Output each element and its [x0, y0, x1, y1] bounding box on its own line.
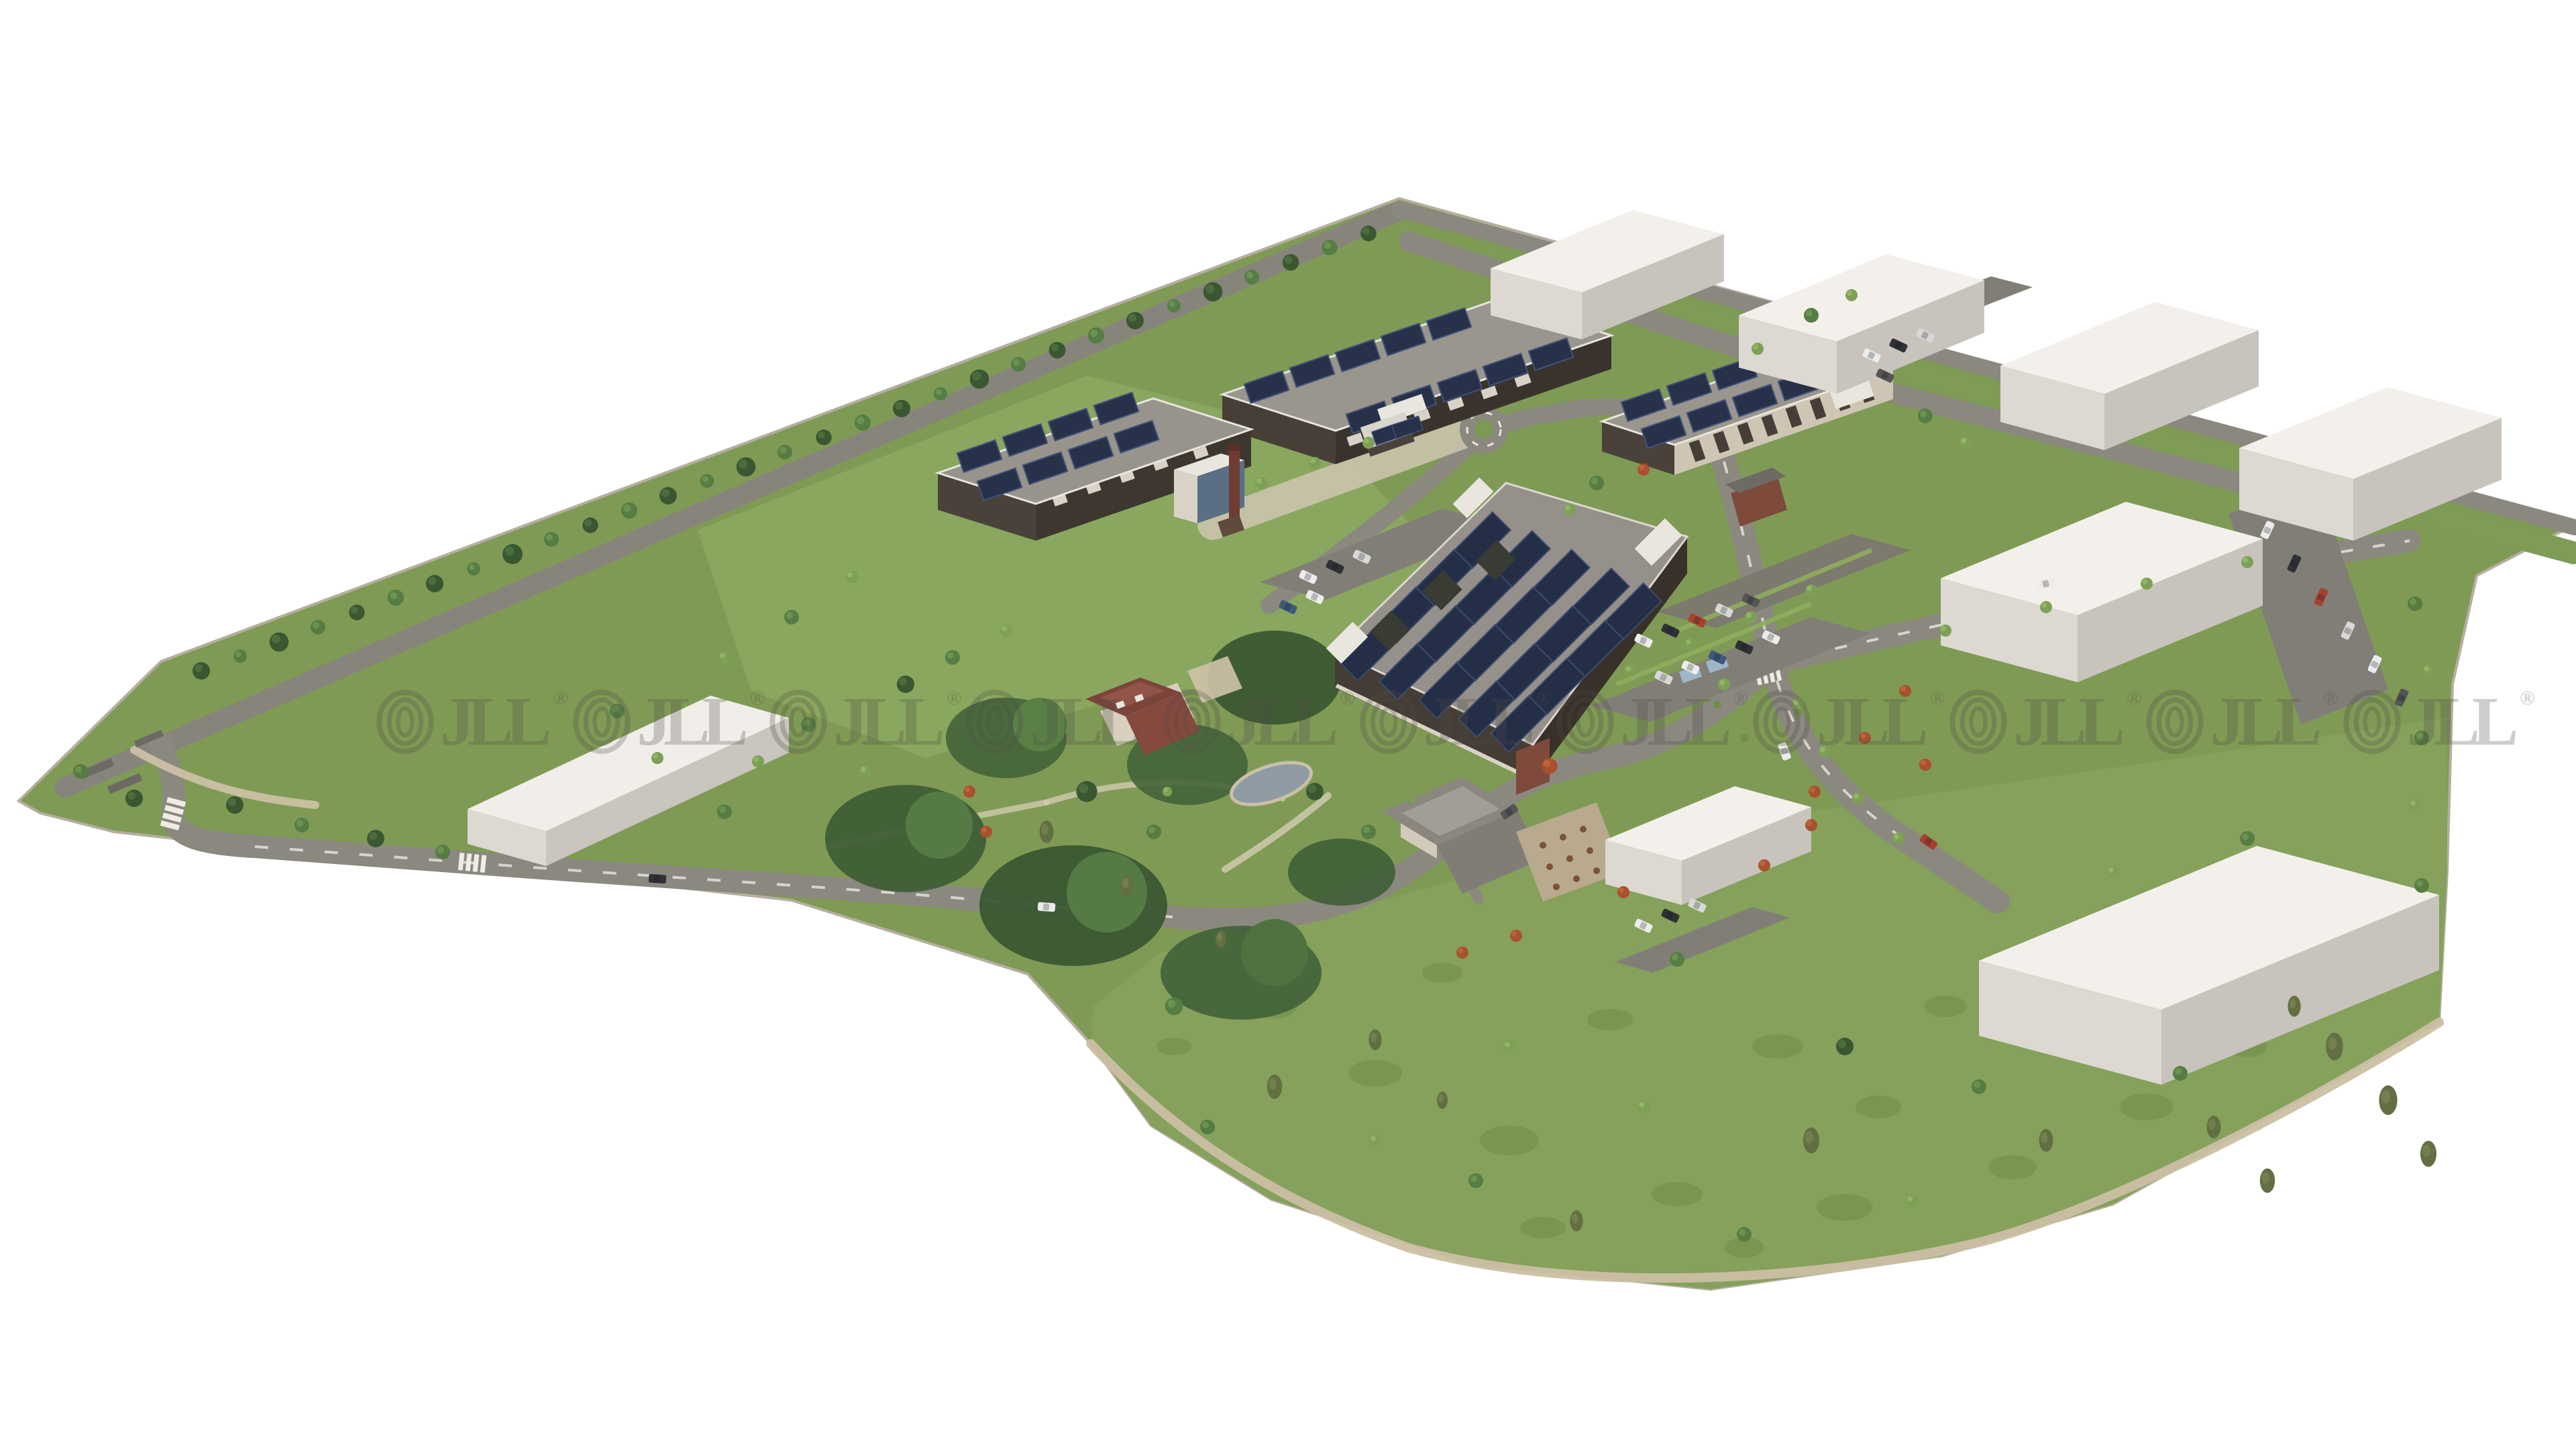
site-plan-render: JLL ® JLL ® JLL ®: [0, 0, 2576, 1449]
aerial-render-svg: [0, 0, 2576, 1449]
